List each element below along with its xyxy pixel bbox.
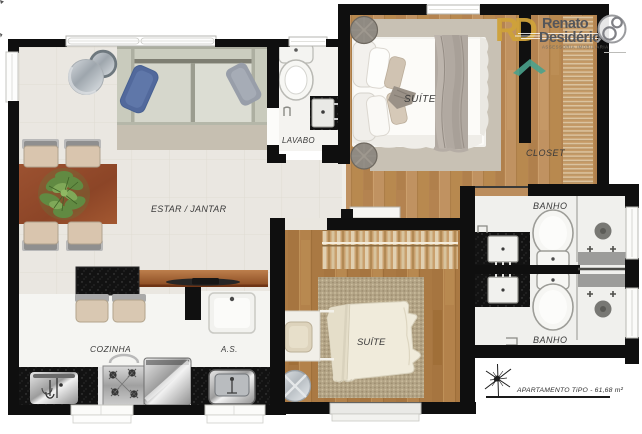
svg-text:A.S.: A.S. xyxy=(220,345,238,354)
svg-text:BANHO: BANHO xyxy=(533,201,568,211)
svg-text:SUÍTE: SUÍTE xyxy=(357,337,386,348)
svg-text:ESTAR / JANTAR: ESTAR / JANTAR xyxy=(151,204,227,214)
svg-text:APARTAMENTO TiPO - 61,68 m²: APARTAMENTO TiPO - 61,68 m² xyxy=(516,387,624,394)
svg-text:ASSESSORIA IMOBILIÁRIA: ASSESSORIA IMOBILIÁRIA xyxy=(542,45,609,50)
svg-text:LAVABO: LAVABO xyxy=(282,136,315,145)
svg-text:COZINHA: COZINHA xyxy=(90,344,131,354)
svg-text:SUÍTE: SUÍTE xyxy=(404,92,436,105)
svg-text:CLOSET: CLOSET xyxy=(526,148,566,158)
svg-text:D: D xyxy=(514,11,537,48)
svg-text:BANHO: BANHO xyxy=(533,335,568,345)
